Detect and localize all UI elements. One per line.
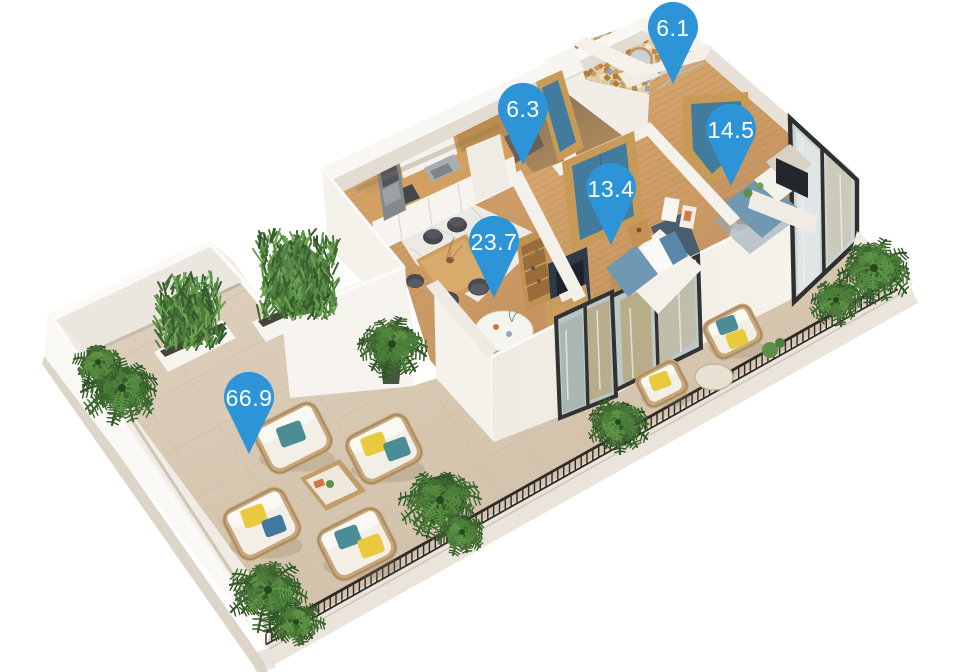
svg-text:6.1: 6.1	[656, 15, 689, 41]
svg-text:6.3: 6.3	[506, 96, 539, 122]
svg-text:23.7: 23.7	[471, 229, 518, 255]
svg-text:66.9: 66.9	[226, 385, 273, 411]
svg-text:13.4: 13.4	[588, 176, 635, 202]
svg-text:14.5: 14.5	[708, 117, 755, 143]
